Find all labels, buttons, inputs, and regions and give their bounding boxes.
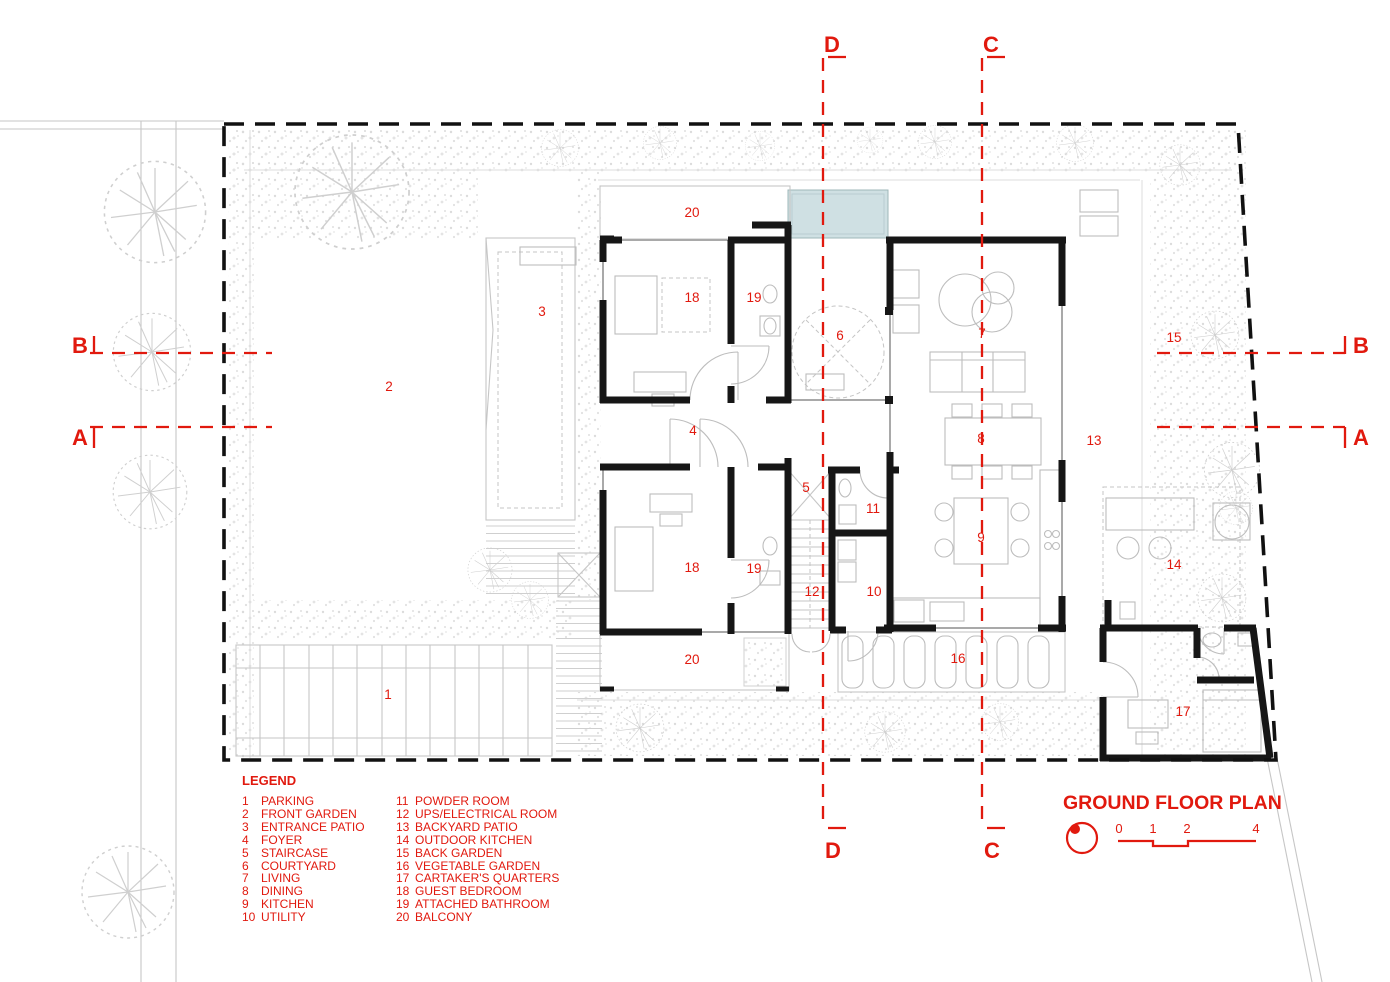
room-number-label: 15	[1166, 330, 1181, 345]
section-b-right-label: B	[1353, 333, 1369, 358]
floor-plan-canvas: 2018193671524813511914181912101620117 DC…	[0, 0, 1390, 982]
room-number-label: 4	[689, 423, 697, 438]
section-a-right-label: A	[1353, 425, 1369, 450]
plan-title: GROUND FLOOR PLAN	[1063, 792, 1282, 814]
section-d-top-label: D	[824, 32, 840, 57]
title-block: GROUND FLOOR PLAN 0 1 2 4	[1063, 792, 1282, 853]
staircase	[788, 470, 832, 628]
scale-tick: 2	[1183, 821, 1190, 836]
scale-bar: 0 1 2 4	[1115, 821, 1259, 846]
tree-icon	[82, 846, 174, 938]
room-number-label: 14	[1166, 557, 1182, 572]
room-number-label: 16	[950, 651, 965, 666]
room-number-label: 20	[684, 205, 699, 220]
room-number-label: 2	[385, 379, 393, 394]
entrance-patio	[486, 238, 576, 520]
room-number-label: 6	[836, 328, 844, 343]
room-number-label: 11	[866, 501, 880, 516]
backyard-patio	[1080, 190, 1118, 236]
section-d-bottom-label: D	[825, 838, 841, 863]
room-number-label: 5	[802, 480, 810, 495]
road-lines	[0, 121, 1322, 982]
room-number-label: 19	[746, 290, 761, 305]
room-number-label: 3	[538, 304, 546, 319]
room-number-label: 17	[1175, 704, 1190, 719]
section-a-left-label: A	[72, 425, 88, 450]
room-number-label: 18	[684, 560, 699, 575]
room-number-label: 18	[684, 290, 699, 305]
section-b-left-label: B	[72, 333, 88, 358]
parking-area	[236, 645, 552, 756]
legend-item: 20BALCONY	[396, 911, 542, 924]
room-number-label: 20	[684, 652, 699, 667]
section-c-bottom-label: C	[984, 838, 1000, 863]
legend: LEGEND 1PARKING2FRONT GARDEN3ENTRANCE PA…	[242, 773, 542, 927]
room-number-label: 13	[1086, 433, 1101, 448]
pool	[788, 190, 888, 238]
north-arrow-icon	[1067, 823, 1097, 853]
balconies	[600, 186, 790, 690]
room-number-label: 9	[977, 530, 985, 545]
room-number-label: 19	[746, 561, 761, 576]
room-number-label: 12	[804, 584, 819, 599]
room-number-label: 1	[384, 687, 392, 702]
scale-tick: 0	[1115, 821, 1122, 836]
scale-tick: 1	[1149, 821, 1156, 836]
scale-tick: 4	[1252, 821, 1259, 836]
room-number-label: 7	[978, 326, 986, 341]
legend-title: LEGEND	[242, 773, 542, 788]
room-number-label: 8	[977, 431, 985, 446]
tree-icon	[104, 161, 205, 262]
section-c-top-label: C	[983, 32, 999, 57]
room-number-label: 10	[866, 584, 881, 599]
legend-items: 1PARKING2FRONT GARDEN3ENTRANCE PATIO4FOY…	[242, 795, 542, 927]
legend-item: 10UTILITY	[242, 911, 388, 924]
floor-plan-page: 2018193671524813511914181912101620117 DC…	[0, 0, 1390, 982]
